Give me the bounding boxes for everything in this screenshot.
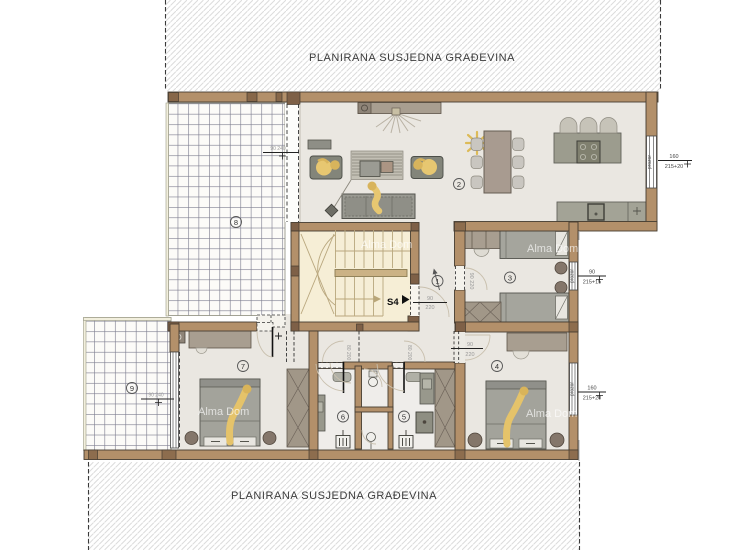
svg-text:4: 4	[495, 362, 499, 371]
svg-text:5: 5	[402, 413, 406, 422]
svg-text:prozor: prozor	[570, 382, 576, 397]
svg-text:S4: S4	[387, 297, 399, 308]
svg-text:90 220: 90 220	[468, 273, 474, 290]
svg-text:90: 90	[467, 342, 473, 348]
svg-text:PLANIRANA SUSJEDNA GRAĐEVINA: PLANIRANA SUSJEDNA GRAĐEVINA	[309, 52, 515, 64]
svg-text:7: 7	[241, 362, 245, 371]
svg-text:PLANIRANA SUSJEDNA GRAĐEVINA: PLANIRANA SUSJEDNA GRAĐEVINA	[231, 490, 437, 502]
svg-text:6: 6	[341, 413, 345, 422]
svg-text:8: 8	[234, 218, 238, 227]
svg-text:prozor: prozor	[647, 155, 653, 170]
svg-text:160: 160	[587, 386, 596, 392]
svg-text:Alma Dom: Alma Dom	[361, 239, 412, 251]
svg-text:215+20: 215+20	[583, 396, 602, 402]
svg-text:160: 160	[669, 154, 678, 160]
svg-text:215+15: 215+15	[583, 280, 602, 286]
svg-text:Alma Dom: Alma Dom	[198, 406, 249, 418]
svg-text:80 200: 80 200	[406, 345, 412, 361]
svg-text:3: 3	[508, 274, 512, 283]
svg-text:Alma Dom: Alma Dom	[527, 243, 578, 255]
svg-text:prozor: prozor	[570, 269, 576, 284]
svg-text:9: 9	[130, 384, 134, 393]
svg-text:2: 2	[457, 180, 461, 189]
svg-text:80 200: 80 200	[345, 345, 351, 361]
svg-text:220: 220	[465, 352, 474, 358]
svg-text:Alma Dom: Alma Dom	[526, 408, 577, 420]
svg-text:90 240: 90 240	[270, 146, 286, 152]
svg-text:220: 220	[425, 305, 434, 311]
svg-text:90 240: 90 240	[148, 393, 164, 399]
svg-text:90: 90	[427, 296, 433, 302]
svg-text:90: 90	[589, 270, 595, 276]
svg-text:215+20: 215+20	[665, 164, 684, 170]
